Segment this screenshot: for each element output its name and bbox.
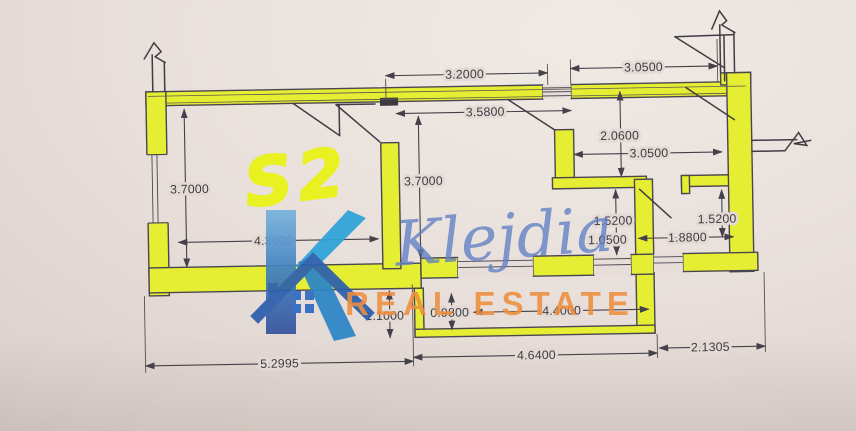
floor-plan-svg: 3.2000 3.0500 3.5800 2.0600 3.0500 3.700… <box>0 0 856 431</box>
brand-tagline-text: REAL ESTATE <box>345 285 635 322</box>
break-symbol-top-left <box>144 43 166 92</box>
break-symbol-right <box>752 132 811 151</box>
dim-upper-mid-width: 3.5800 <box>466 105 505 120</box>
dim-total-left: 5.2995 <box>260 356 299 371</box>
room-label-marker: S2 <box>240 133 354 222</box>
dim-right-room-height: 1.5200 <box>698 212 737 227</box>
brand-watermark: Klejdia REAL ESTATE <box>258 193 635 341</box>
balcony-rim-bottom <box>415 325 655 337</box>
brand-name-text: Klejdia <box>391 193 615 281</box>
floor-plan-photo: 3.2000 3.0500 3.5800 2.0600 3.0500 3.700… <box>0 0 856 431</box>
wall-hall-bottom <box>552 176 646 189</box>
dim-mid-height: 3.7000 <box>404 174 443 189</box>
dim-top-right-width: 3.0500 <box>624 60 663 75</box>
dim-s2-height: 3.7000 <box>170 182 209 197</box>
wall-step <box>555 129 575 179</box>
wall-right-inner-stub <box>681 175 689 193</box>
dim-right-room-width: 1.8800 <box>668 230 707 245</box>
dim-top-left-width: 3.2000 <box>445 67 484 82</box>
wall-bottom-mid-3 <box>631 254 654 274</box>
wall-bottom-right <box>683 252 758 271</box>
wall-left-upper <box>146 92 167 155</box>
wall-right-thick <box>727 72 754 271</box>
dim-total-mid: 4.6400 <box>517 348 556 363</box>
dim-hall-width: 3.0500 <box>629 146 668 161</box>
dim-hall-height: 2.0600 <box>600 128 639 143</box>
door-leaves <box>292 35 737 225</box>
dim-total-right: 2.1305 <box>691 340 730 355</box>
